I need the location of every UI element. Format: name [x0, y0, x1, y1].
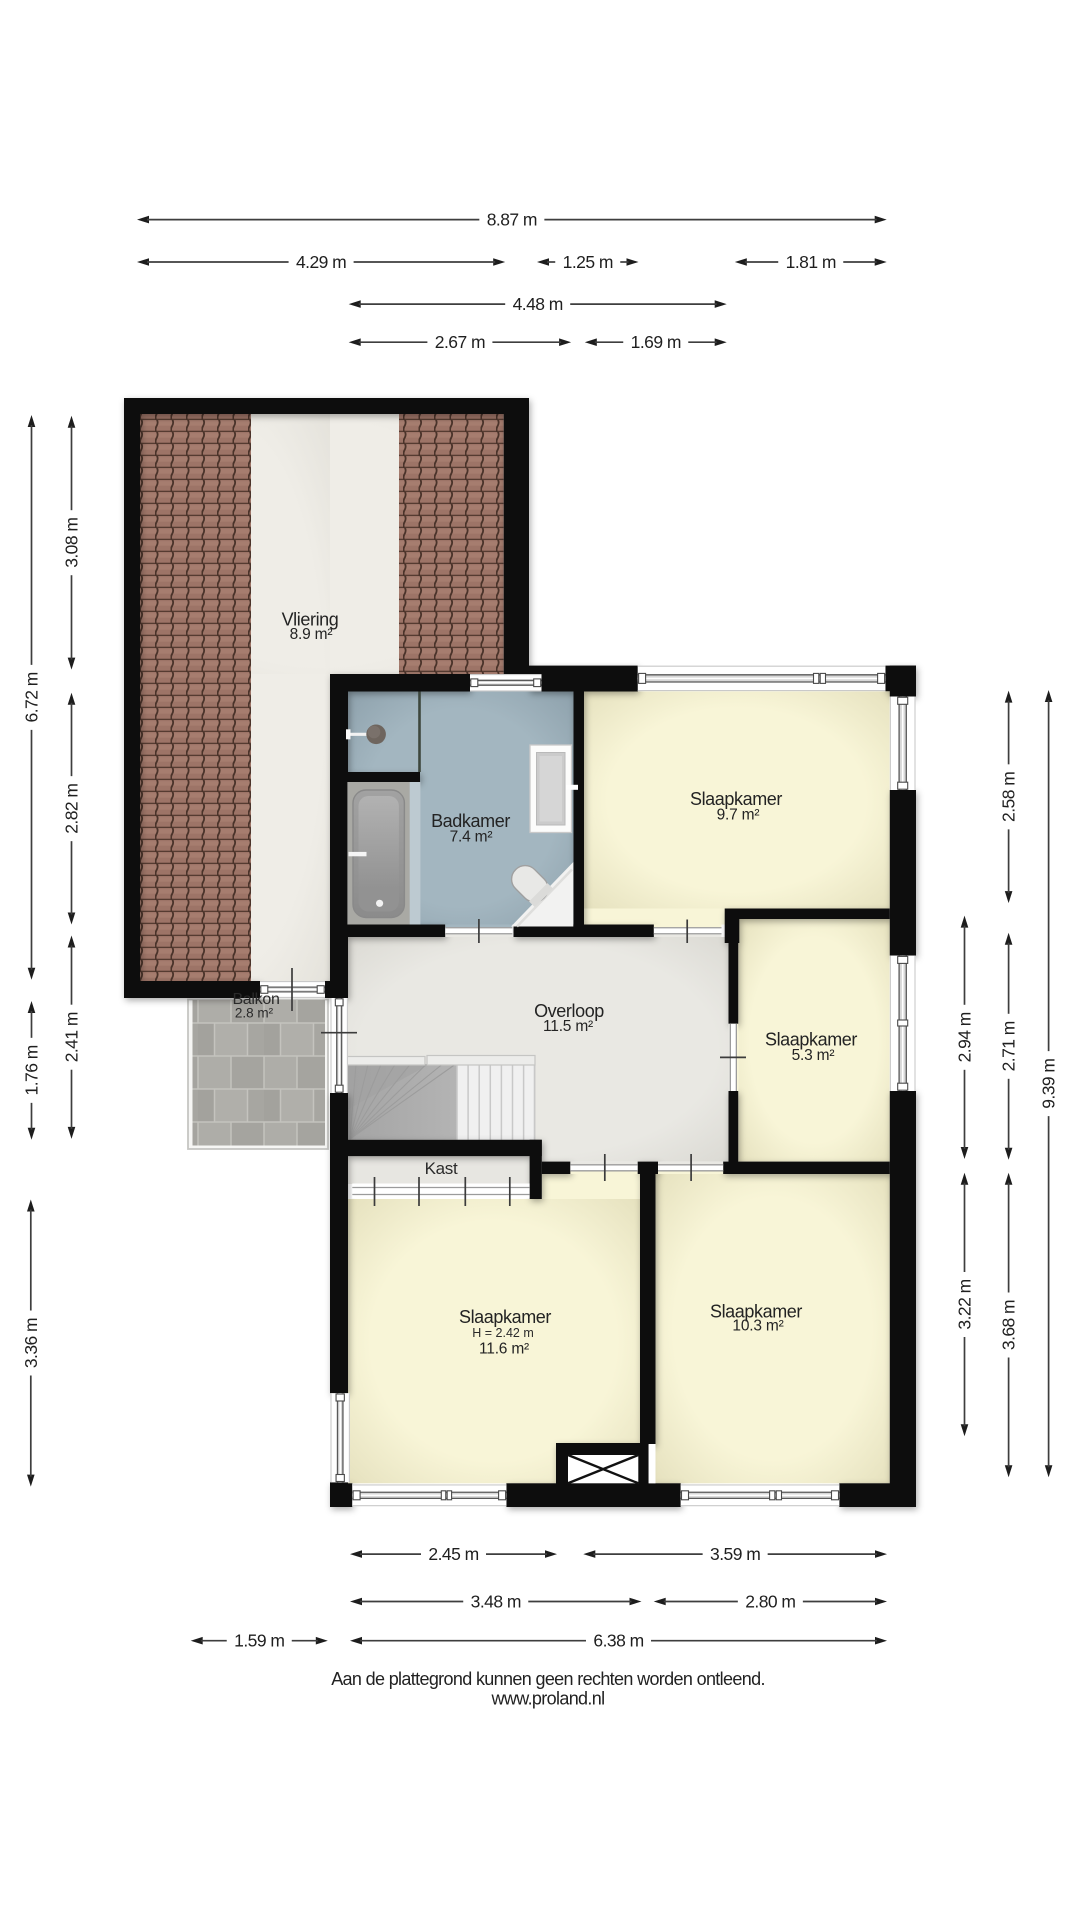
svg-text:Aan de plattegrond kunnen geen: Aan de plattegrond kunnen geen rechten w… — [331, 1669, 765, 1689]
svg-text:3.59 m: 3.59 m — [710, 1544, 760, 1564]
svg-text:8.87 m: 8.87 m — [487, 210, 537, 230]
svg-text:Kast: Kast — [425, 1159, 458, 1178]
svg-text:3.08 m: 3.08 m — [62, 518, 82, 568]
svg-text:3.36 m: 3.36 m — [21, 1318, 41, 1368]
svg-text:7.4 m²: 7.4 m² — [450, 829, 493, 846]
svg-text:9.7 m²: 9.7 m² — [717, 807, 760, 824]
svg-text:2.67 m: 2.67 m — [435, 332, 485, 352]
svg-text:4.48 m: 4.48 m — [513, 294, 563, 314]
svg-text:3.22 m: 3.22 m — [955, 1279, 975, 1329]
svg-text:3.48 m: 3.48 m — [471, 1592, 521, 1612]
svg-text:1.69 m: 1.69 m — [631, 332, 681, 352]
svg-text:11.6 m²: 11.6 m² — [479, 1341, 529, 1358]
svg-text:6.38 m: 6.38 m — [593, 1631, 643, 1651]
svg-text:10.3 m²: 10.3 m² — [732, 1318, 783, 1335]
svg-text:8.9 m²: 8.9 m² — [290, 626, 333, 643]
svg-text:Slaapkamer: Slaapkamer — [459, 1307, 551, 1327]
svg-text:2.82 m: 2.82 m — [62, 784, 82, 834]
svg-text:2.41 m: 2.41 m — [62, 1012, 82, 1062]
svg-text:5.3 m²: 5.3 m² — [792, 1047, 835, 1064]
svg-text:2.94 m: 2.94 m — [955, 1012, 975, 1062]
svg-text:1.76 m: 1.76 m — [22, 1045, 42, 1095]
svg-text:4.29 m: 4.29 m — [296, 252, 346, 272]
svg-text:1.59 m: 1.59 m — [234, 1631, 284, 1651]
svg-text:2.8 m²: 2.8 m² — [235, 1006, 274, 1021]
svg-text:2.58 m: 2.58 m — [999, 772, 1019, 822]
svg-text:H = 2.42 m: H = 2.42 m — [472, 1326, 534, 1340]
svg-text:3.68 m: 3.68 m — [999, 1300, 1019, 1350]
svg-text:2.80 m: 2.80 m — [745, 1592, 795, 1612]
svg-text:1.25 m: 1.25 m — [563, 252, 613, 272]
svg-text:www.proland.nl: www.proland.nl — [491, 1689, 605, 1709]
svg-text:2.71 m: 2.71 m — [999, 1021, 1019, 1071]
svg-text:2.45 m: 2.45 m — [428, 1544, 478, 1564]
svg-text:9.39 m: 9.39 m — [1039, 1059, 1059, 1109]
svg-text:6.72 m: 6.72 m — [22, 672, 42, 722]
svg-text:1.81 m: 1.81 m — [786, 252, 836, 272]
svg-text:11.5 m²: 11.5 m² — [543, 1018, 593, 1035]
